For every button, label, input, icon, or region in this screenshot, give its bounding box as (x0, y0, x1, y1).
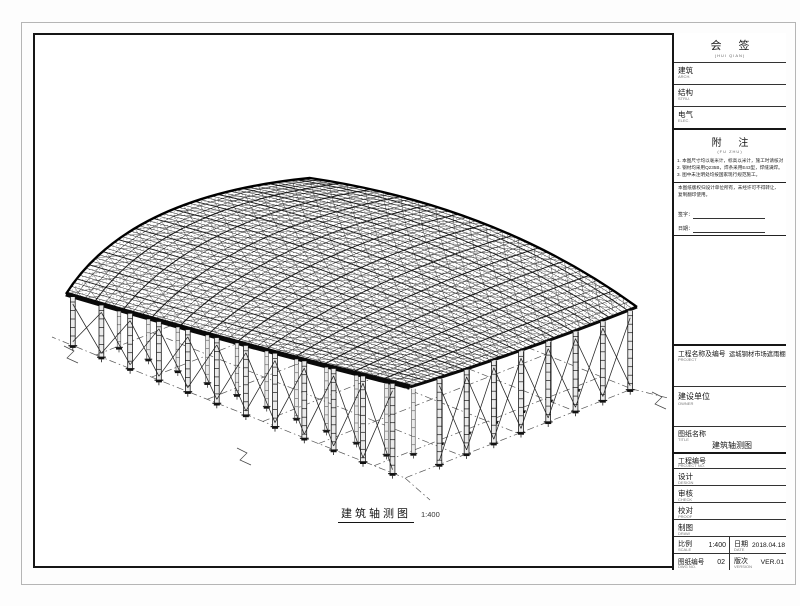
copyright-box: 本图纸版权归设计单位所有，未经许可不得转让、复制翻印使用。 签字： 日期： (674, 182, 786, 236)
countersign-subtitle: (HUI QIAN) (674, 53, 786, 58)
title-block: 会 签 (HUI QIAN) 建筑 ARCH. 结构 STRU. 电气 ELEC… (672, 33, 786, 570)
scale-value: 1:400 (708, 542, 726, 549)
notes-list: 1. 本图尺寸均以毫米计，标高以米计，施工时请核对。 2. 钢材均采用Q235B… (674, 156, 786, 181)
countersign-header: 会 签 (HUI QIAN) (674, 33, 786, 63)
scale-sub: SCALE (678, 547, 691, 552)
dwg-title-sub: TITLE (678, 437, 689, 442)
caption-title: 建筑轴测图 (338, 508, 414, 523)
drawing-caption: 建筑轴测图1:400 (338, 504, 440, 522)
version-sub: VERSION (734, 564, 752, 569)
note-item: 1. 本图尺寸均以毫米计，标高以米计，施工时请核对。 (677, 157, 783, 164)
dwgno-cell: 图纸编号 DWG NO. 02 (674, 554, 730, 570)
countersign-row-stru: 结构 STRU. (674, 85, 786, 107)
dwgno-value: 02 (717, 559, 725, 566)
project-sub: PROJECT (678, 357, 697, 362)
scale-cell: 比例 SCALE 1:400 (674, 537, 730, 553)
dwgno-ver-row: 图纸编号 DWG NO. 02 版次 VERSION VER.01 (674, 553, 786, 570)
row-design: 设计 DESIGN (674, 468, 786, 485)
dwg-title-value: 建筑轴测图 (712, 440, 752, 451)
dwg-title-section: 图纸名称 TITLE 建筑轴测图 (674, 426, 786, 452)
notes-title: 附 注 (674, 130, 786, 149)
date-label: 日期： (678, 226, 693, 232)
row-sub: ELEC. (678, 118, 690, 123)
version-cell: 版次 VERSION VER.01 (730, 554, 786, 570)
notes-subtitle: (FU ZHU) (674, 149, 786, 154)
caption-scale: 1:400 (421, 510, 440, 519)
dwgno-sub: DWG NO. (678, 564, 696, 569)
copyright-text: 本图纸版权归设计单位所有，未经许可不得转让、复制翻印使用。 (674, 183, 786, 198)
row-check: 审核 CHECK (674, 485, 786, 502)
project-section: 工程名称及编号 运城钢材市场遮雨棚 PROJECT (674, 344, 786, 386)
row-project-no: 工程编号 PROJECT NO. (674, 452, 786, 468)
countersign-row-elec: 电气 ELEC. (674, 107, 786, 130)
owner-sub: OWNER (678, 401, 693, 406)
countersign-title: 会 签 (674, 33, 786, 53)
project-value: 运城钢材市场遮雨棚 (729, 349, 786, 358)
date-line: 日期： (678, 225, 778, 233)
countersign-row-arch: 建筑 ARCH. (674, 63, 786, 85)
note-item: 3. 图中未注明处均按国家现行规范施工。 (677, 171, 783, 178)
date-value: 2018.04.18 (752, 542, 785, 549)
notes-header: 附 注 (FU ZHU) (674, 130, 786, 156)
version-value: VER.01 (761, 559, 784, 566)
scale-date-row: 比例 SCALE 1:400 日期 DATE 2018.04.18 (674, 536, 786, 553)
row-proof: 校对 PROOF (674, 502, 786, 519)
sign-line: 签字： (678, 211, 778, 219)
date-sub: DATE (734, 547, 744, 552)
row-draw: 制图 DRAW (674, 519, 786, 536)
owner-section: 建设单位 OWNER (674, 386, 786, 426)
sign-label: 签字： (678, 212, 693, 218)
row-sub: STRU. (678, 96, 690, 101)
row-sub: ARCH. (678, 74, 690, 79)
note-item: 2. 钢材均采用Q235B，焊条采用E43型，焊缝满焊。 (677, 164, 783, 171)
date-cell: 日期 DATE 2018.04.18 (730, 537, 786, 553)
